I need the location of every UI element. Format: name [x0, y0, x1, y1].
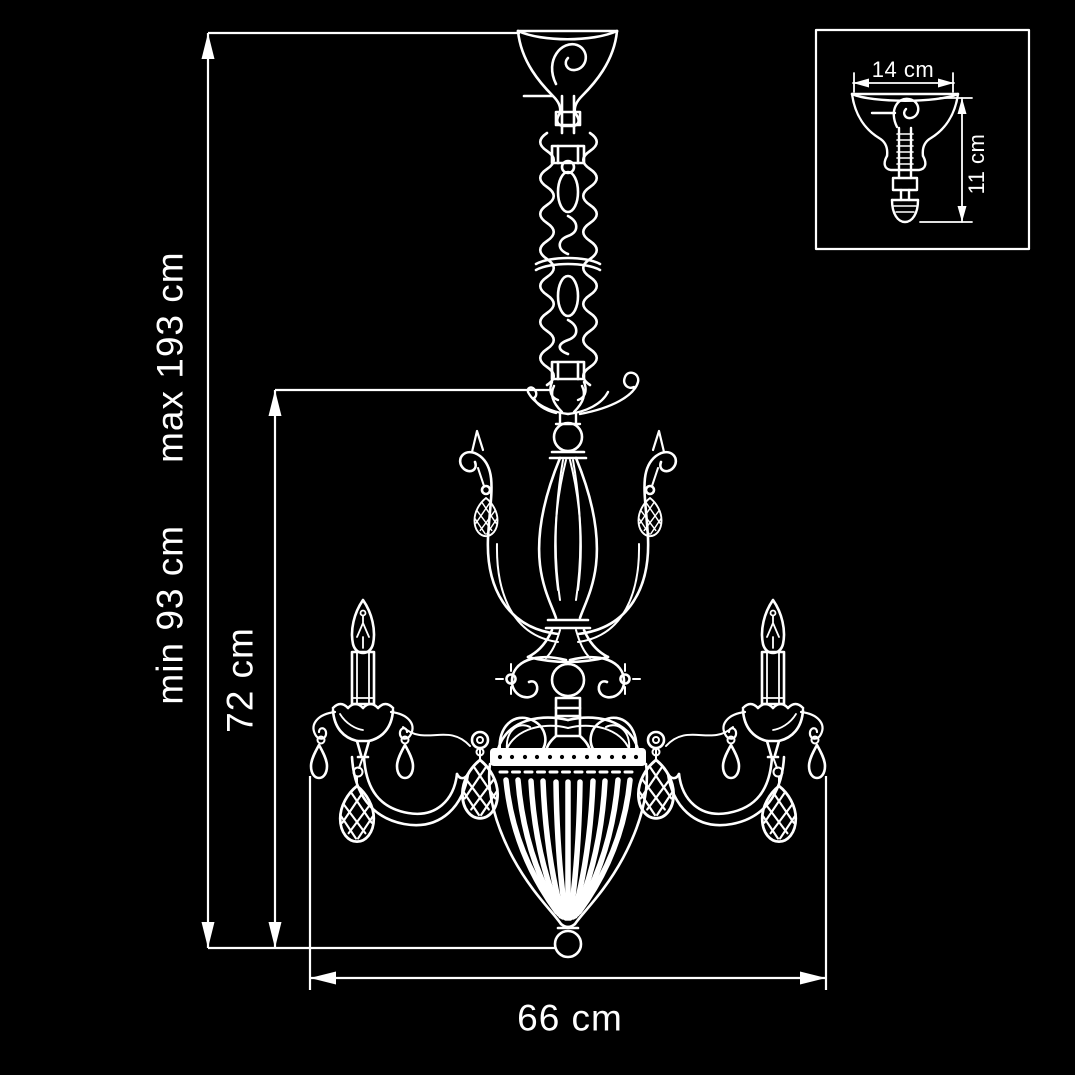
- upper-crystal-pear: [474, 498, 497, 536]
- bottom-ball-finial: [555, 931, 581, 957]
- chain-cover: [536, 133, 600, 385]
- basket-ribs: [506, 780, 630, 918]
- overall-height-min-label: min 93 cm: [152, 525, 189, 705]
- crystal-basket: [489, 748, 647, 957]
- leaf-crown: [528, 373, 638, 424]
- canopy-width-label: 14 cm: [872, 59, 934, 81]
- canopy-hook: [552, 44, 586, 84]
- inner-crystal-pear: [462, 760, 497, 818]
- teardrop-crystal-inner: [397, 745, 413, 778]
- ceiling-canopy: [518, 31, 617, 133]
- chandelier-body: [489, 31, 647, 957]
- bobeche-hook-left: [314, 712, 335, 739]
- body-height-label: 72 cm: [222, 627, 259, 733]
- dimension-lines: [202, 33, 827, 990]
- inset-hook: [894, 99, 918, 127]
- canopy-height-label: 11 cm: [966, 134, 988, 195]
- upper-scroll-arm: [460, 431, 558, 642]
- teardrop-crystal-outer: [311, 745, 327, 778]
- chandelier-dimension-drawing: min 93 cm max 193 cm 72 cm 66 cm 14 cm 1…: [0, 0, 1075, 1075]
- inset-canopy-drawing: [852, 94, 958, 222]
- outer-crystal-pear: [340, 786, 374, 842]
- column-vase: [528, 423, 608, 662]
- bobeche-hook-right: [391, 712, 412, 739]
- body-width-label: 66 cm: [517, 1000, 623, 1037]
- overall-height-max-label: max 193 cm: [152, 251, 189, 463]
- overall-height-label: min 93 cm max 193 cm: [152, 251, 189, 704]
- dimension-arrows: [202, 33, 827, 985]
